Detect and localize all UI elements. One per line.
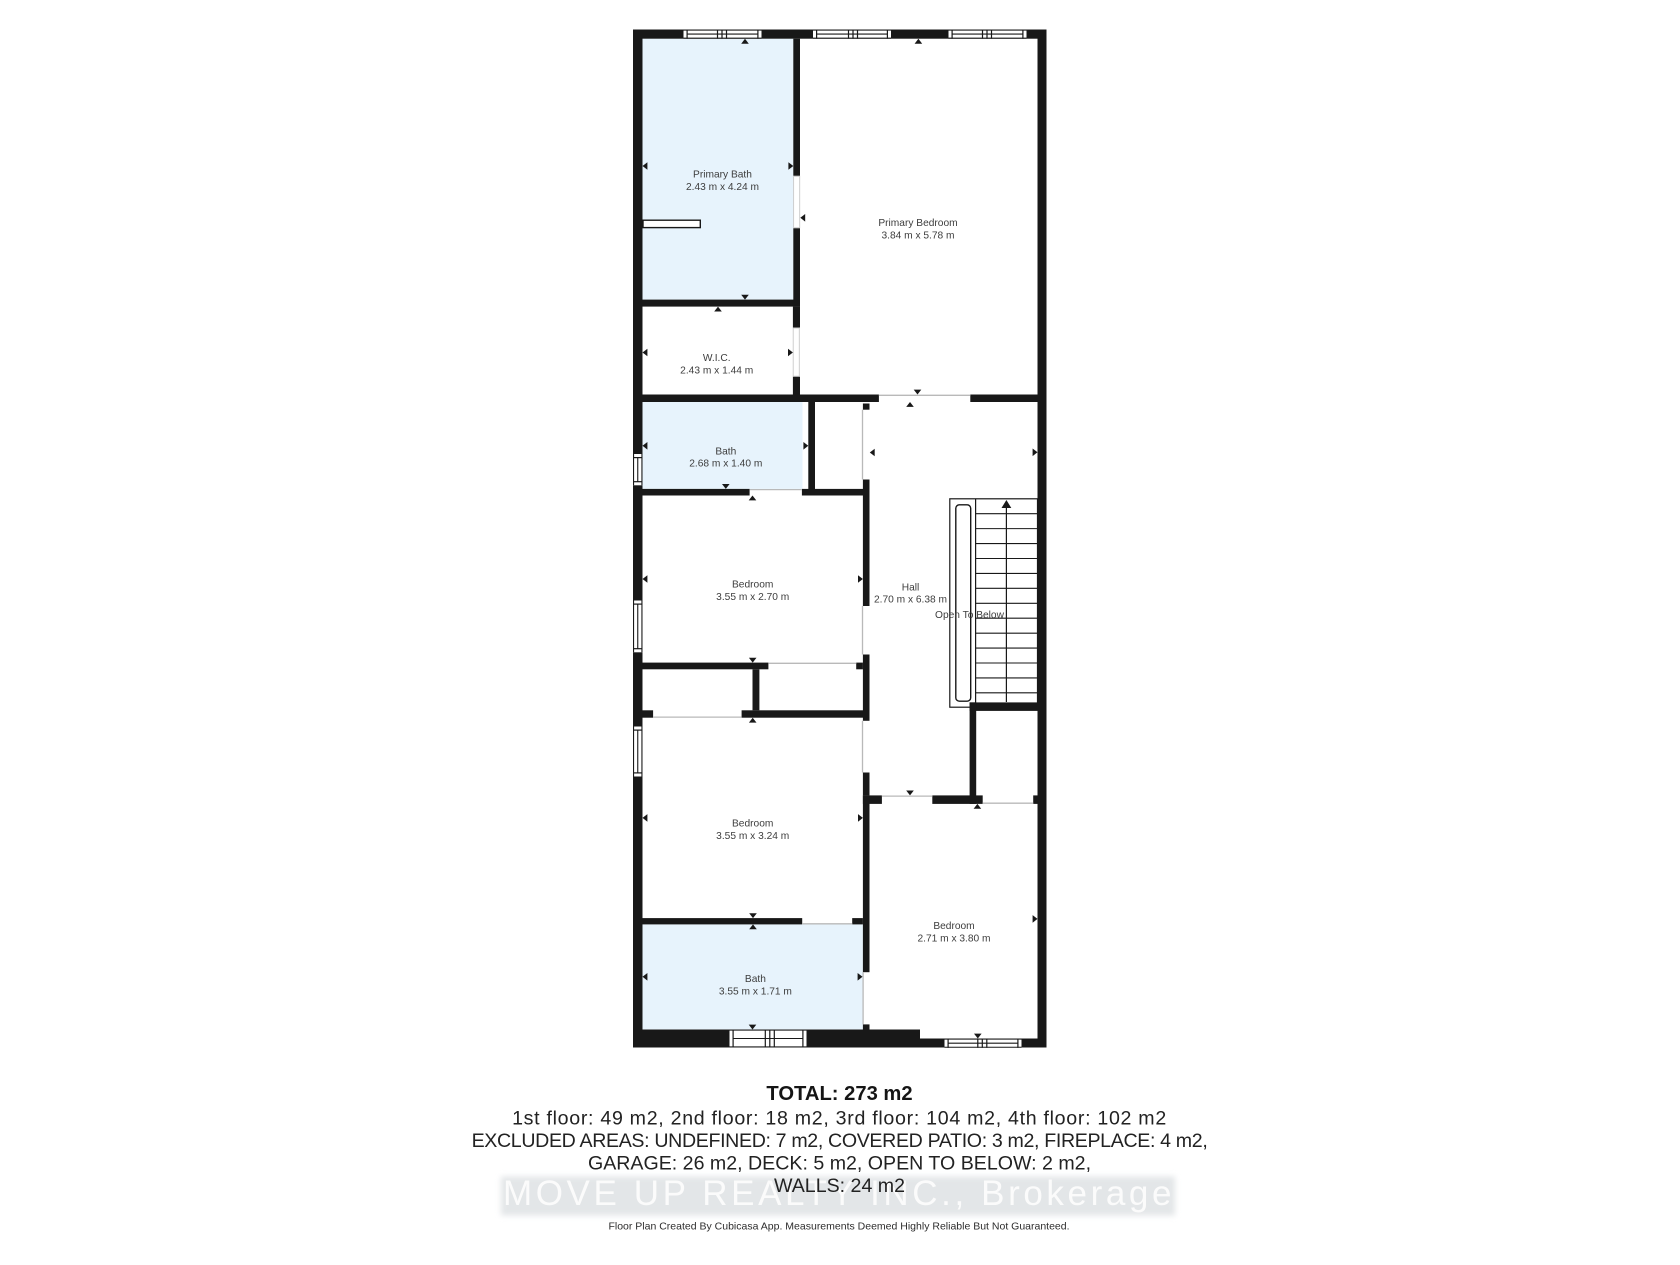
svg-text:2.43 m x 4.24 m: 2.43 m x 4.24 m (686, 182, 759, 193)
svg-text:Primary Bedroom: Primary Bedroom (878, 218, 957, 229)
svg-text:1st floor: 49 m2, 2nd floor: 1: 1st floor: 49 m2, 2nd floor: 18 m2, 3rd … (512, 1107, 1167, 1129)
svg-text:2.43 m x 1.44 m: 2.43 m x 1.44 m (680, 365, 753, 376)
svg-text:Bath: Bath (715, 446, 736, 457)
svg-text:3.55 m x 3.24 m: 3.55 m x 3.24 m (716, 831, 789, 842)
svg-text:Bath: Bath (745, 974, 766, 985)
svg-text:3.84 m x 5.78 m: 3.84 m x 5.78 m (881, 230, 954, 241)
svg-text:W.I.C.: W.I.C. (703, 353, 731, 364)
svg-text:TOTAL: 273 m2: TOTAL: 273 m2 (766, 1083, 912, 1105)
svg-text:2.71 m x 3.80 m: 2.71 m x 3.80 m (917, 934, 990, 945)
svg-text:2.70 m x 6.38 m: 2.70 m x 6.38 m (874, 595, 947, 606)
svg-text:GARAGE: 26 m2, DECK: 5 m2, OPE: GARAGE: 26 m2, DECK: 5 m2, OPEN TO BELOW… (588, 1152, 1091, 1174)
svg-text:2.68 m x 1.40 m: 2.68 m x 1.40 m (689, 459, 762, 470)
svg-text:3.55 m x 2.70 m: 3.55 m x 2.70 m (716, 592, 789, 603)
svg-text:WALLS: 24 m2: WALLS: 24 m2 (774, 1175, 905, 1197)
svg-text:Open To Below: Open To Below (935, 610, 1005, 621)
svg-text:Bedroom: Bedroom (732, 819, 773, 830)
svg-text:EXCLUDED AREAS: UNDEFINED: 7 m: EXCLUDED AREAS: UNDEFINED: 7 m2, COVERED… (472, 1130, 1208, 1152)
svg-text:Bedroom: Bedroom (732, 580, 773, 591)
svg-text:Bedroom: Bedroom (933, 921, 974, 932)
svg-text:Floor Plan Created By Cubicasa: Floor Plan Created By Cubicasa App. Meas… (608, 1220, 1069, 1232)
svg-text:Primary Bath: Primary Bath (693, 170, 752, 181)
svg-text:3.55 m x 1.71 m: 3.55 m x 1.71 m (719, 986, 792, 997)
svg-text:Hall: Hall (902, 582, 920, 593)
